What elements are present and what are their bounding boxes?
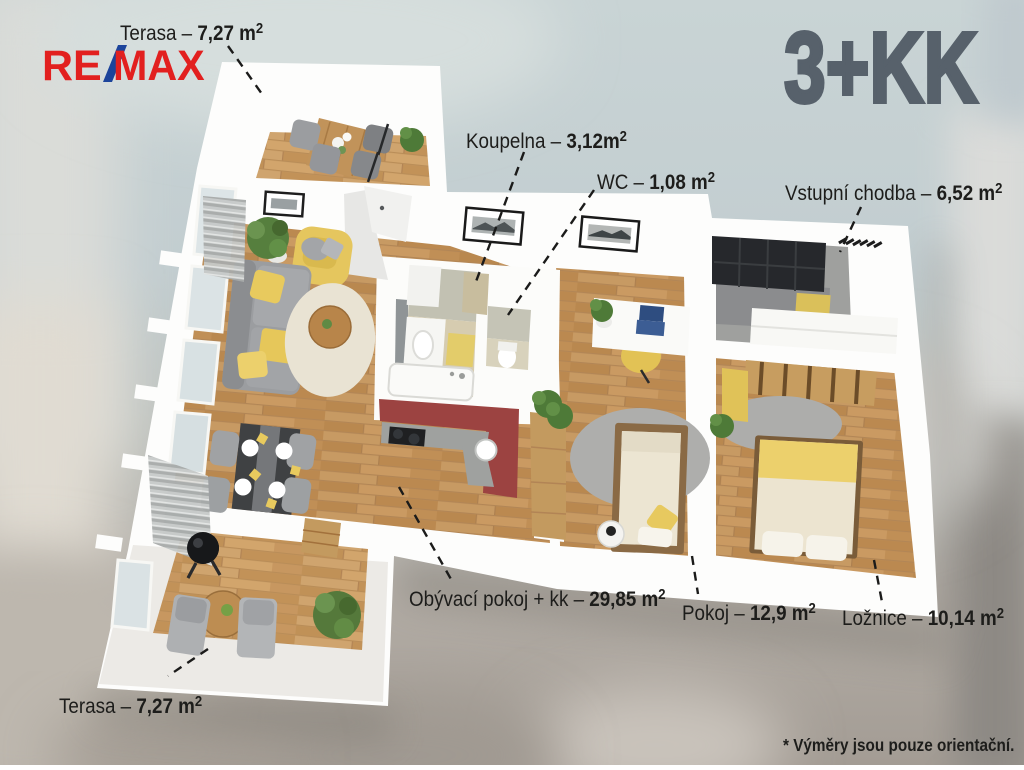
svg-text:Vstupní chodba – 6,52 m2: Vstupní chodba – 6,52 m2: [785, 179, 1003, 205]
svg-text:Ložnice – 10,14 m2: Ložnice – 10,14 m2: [842, 604, 1004, 630]
svg-text:Terasa – 7,27 m2: Terasa – 7,27 m2: [59, 692, 202, 718]
svg-text:* Výměry jsou pouze orientační: * Výměry jsou pouze orientační.: [783, 736, 1014, 755]
svg-text:MAX: MAX: [113, 41, 205, 89]
svg-text:RE: RE: [42, 42, 102, 90]
svg-text:Obývací pokoj + kk – 29,85 m2: Obývací pokoj + kk – 29,85 m2: [409, 585, 666, 611]
svg-text:3+KK: 3+KK: [784, 11, 978, 123]
svg-text:Pokoj – 12,9 m2: Pokoj – 12,9 m2: [682, 599, 816, 625]
svg-text:WC – 1,08 m2: WC – 1,08 m2: [597, 168, 715, 194]
svg-text:Koupelna – 3,12m2: Koupelna – 3,12m2: [466, 127, 627, 153]
